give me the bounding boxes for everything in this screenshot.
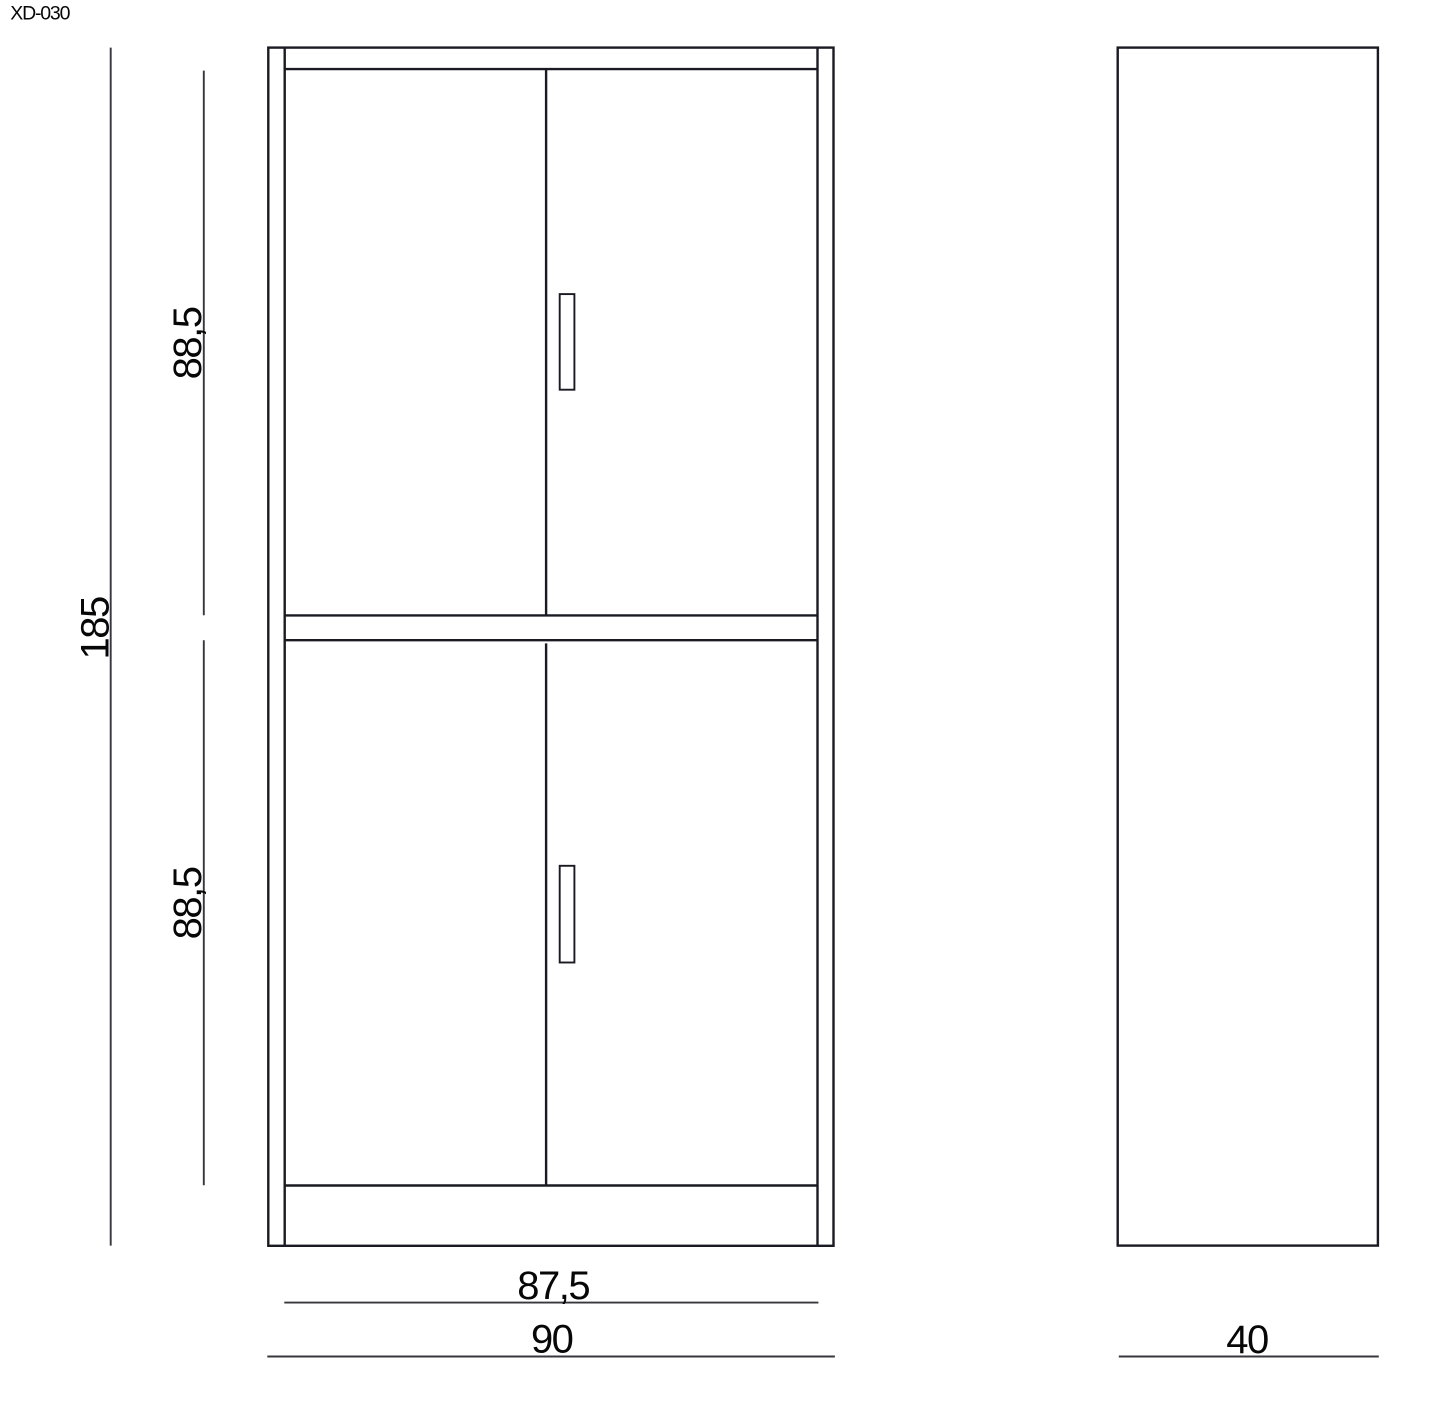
svg-text:88,5: 88,5 [166,867,210,939]
svg-text:XD-030: XD-030 [10,3,70,25]
svg-text:87,5: 87,5 [517,1264,589,1308]
svg-text:185: 185 [73,597,117,659]
svg-text:88,5: 88,5 [166,307,210,379]
svg-text:90: 90 [531,1318,573,1362]
svg-text:40: 40 [1226,1318,1268,1362]
